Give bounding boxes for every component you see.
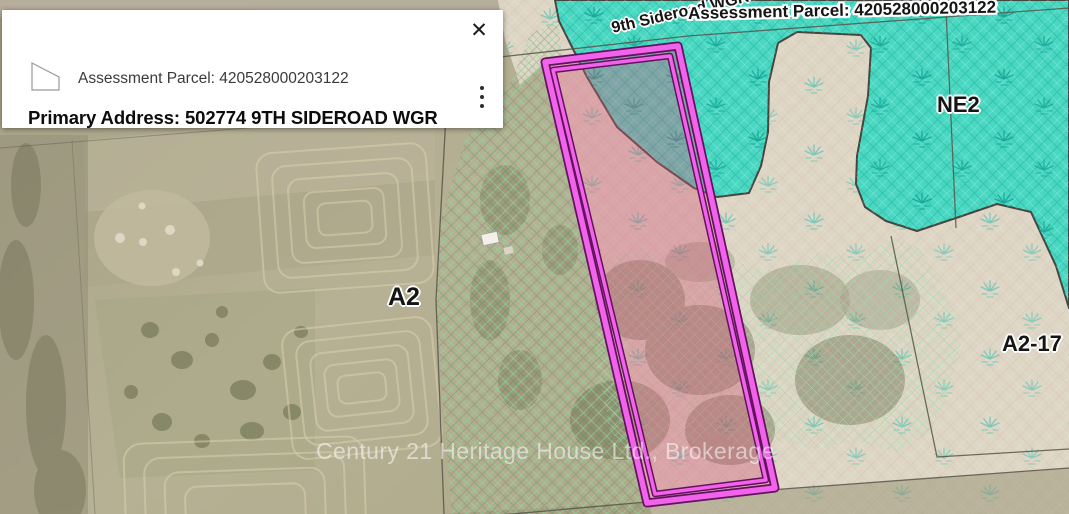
primary-address-text: Primary Address: 502774 9TH SIDEROAD WGR bbox=[28, 107, 438, 129]
close-button[interactable]: ✕ bbox=[467, 18, 491, 42]
brokerage-watermark: Century 21 Heritage House Ltd., Brokerag… bbox=[316, 438, 775, 465]
parcel-icon bbox=[30, 60, 62, 92]
map-viewport: 9th Sideroad WGR Assessment Parcel: 4205… bbox=[0, 0, 1069, 514]
zone-label-a2-17: A2-17 bbox=[1002, 331, 1062, 357]
zone-label-a2: A2 bbox=[388, 283, 420, 312]
assessment-parcel-text: Assessment Parcel: 420528000203122 bbox=[78, 70, 349, 88]
parcel-info-popup: ✕ Assessment Parcel: 420528000203122 Pri… bbox=[2, 10, 503, 128]
more-options-button[interactable] bbox=[478, 84, 486, 110]
zone-label-ne2: NE2 bbox=[937, 92, 980, 118]
